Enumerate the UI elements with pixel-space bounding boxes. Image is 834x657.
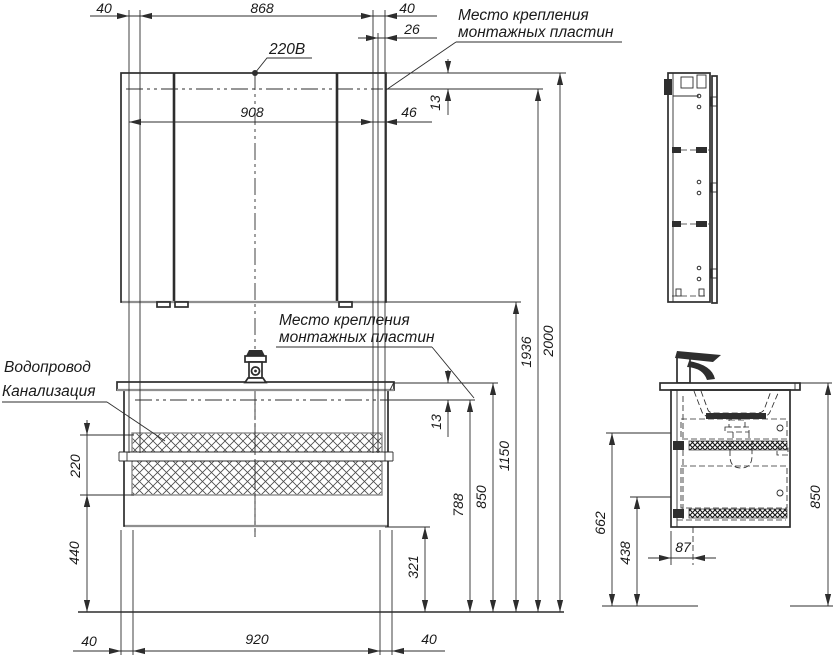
dim-top-right-40: 40: [399, 0, 415, 16]
dim-side-850: 850: [807, 485, 823, 509]
technical-drawing-sheet: 40 868 40 26 908 46 13 13 788 850 1150 1…: [0, 0, 834, 657]
dim-side-662: 662: [592, 511, 608, 535]
dim-top-left-40: 40: [96, 0, 112, 16]
callout-mounting-top: Место крепления монтажных пластин: [386, 7, 622, 90]
dimensions-heights: 13 788 850 1150 1936 2000: [428, 73, 560, 612]
shelf-hidden-lines: [672, 147, 709, 227]
dim-h-1936: 1936: [518, 336, 534, 367]
dim-bot-left-40: 40: [81, 633, 97, 649]
vanity-side: [660, 351, 800, 527]
dim-hatch-220: 220: [67, 454, 83, 479]
dim-h-788: 788: [450, 493, 466, 517]
hinge-marks: [697, 94, 701, 281]
mounting-mid-line2: монтажных пластин: [279, 329, 435, 346]
dim-right-321: 321: [405, 555, 421, 578]
sink-bowl-hidden: [694, 391, 779, 432]
dim-mirror-13: 13: [427, 95, 443, 111]
dim-top-26: 26: [403, 21, 420, 37]
dim-bot-920: 920: [245, 631, 269, 647]
dim-mirror-908: 908: [240, 104, 264, 120]
faucet-front: [245, 350, 266, 383]
dim-left-440: 440: [66, 541, 82, 565]
bathroom-installation-diagram: 40 868 40 26 908 46 13 13 788 850 1150 1…: [0, 0, 834, 657]
dim-side-438: 438: [617, 541, 633, 565]
dim-h-13: 13: [428, 414, 444, 430]
drawer-rail: [119, 452, 393, 461]
drawer-hidden-lines: [673, 419, 788, 520]
sewer-label: Канализация: [2, 383, 96, 400]
mounting-mid-line1: Место крепления: [279, 312, 410, 329]
dim-bot-right-40: 40: [421, 631, 437, 647]
dim-side-87: 87: [675, 539, 692, 555]
vanity-front: [117, 350, 394, 537]
dim-h-850: 850: [473, 485, 489, 509]
mirror-cabinet-side: [664, 73, 717, 303]
dim-mirror-46: 46: [401, 104, 417, 120]
mounting-top-line2: монтажных пластин: [458, 24, 614, 41]
dimensions-top: 40 868 40 26 908 46 13: [90, 0, 448, 122]
water-label: Водопровод: [4, 359, 91, 376]
dim-top-868: 868: [250, 0, 274, 16]
plumbing-zone-hatch: [132, 433, 382, 495]
power-label: 220В: [268, 41, 305, 58]
faucet-side: [675, 351, 721, 383]
dim-h-2000: 2000: [540, 325, 556, 357]
mounting-top-line1: Место крепления: [458, 7, 589, 24]
dim-h-1150: 1150: [496, 441, 512, 471]
callout-power: 220В: [252, 41, 312, 76]
